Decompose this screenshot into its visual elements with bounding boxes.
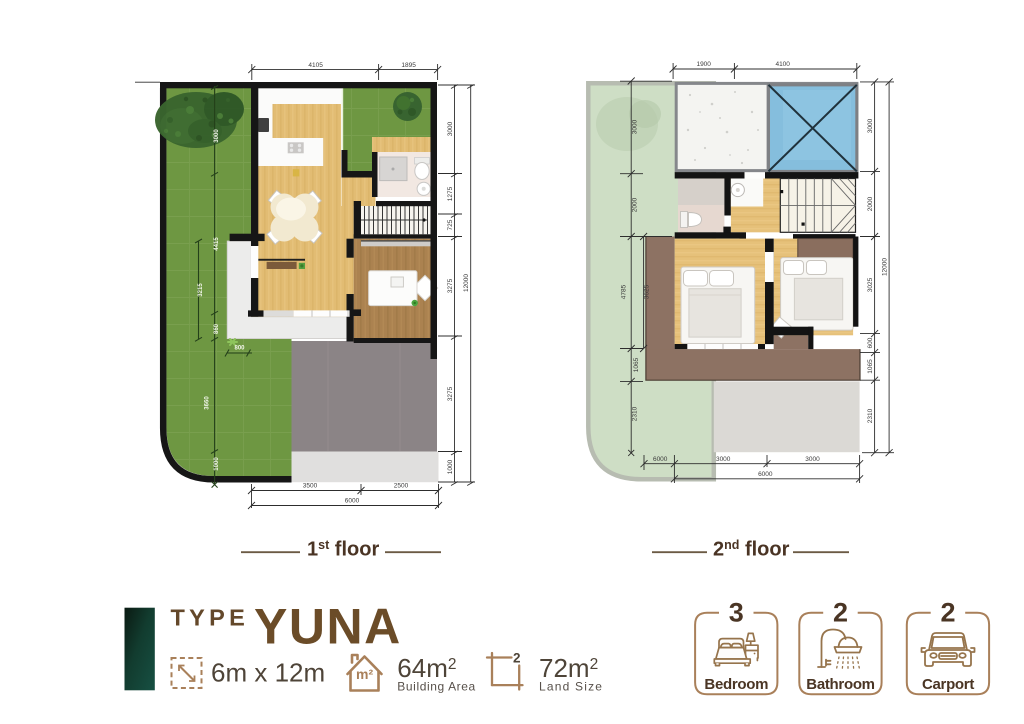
svg-text:600: 600 — [867, 337, 874, 348]
svg-text:2nd floor: 2nd floor — [713, 538, 790, 561]
svg-text:1900: 1900 — [696, 61, 711, 68]
svg-text:3000: 3000 — [867, 118, 874, 133]
svg-text:2: 2 — [513, 651, 521, 666]
svg-text:12000: 12000 — [882, 258, 889, 276]
svg-text:1065: 1065 — [867, 359, 874, 374]
svg-text:Land Size: Land Size — [539, 680, 603, 694]
svg-text:3000: 3000 — [632, 119, 639, 134]
svg-text:6000: 6000 — [345, 498, 360, 505]
svg-text:72m2: 72m2 — [539, 653, 598, 683]
svg-text:2500: 2500 — [394, 483, 409, 490]
svg-text:2000: 2000 — [632, 197, 639, 212]
svg-text:3000: 3000 — [716, 456, 731, 463]
svg-text:6000: 6000 — [758, 471, 773, 478]
svg-text:6000: 6000 — [653, 456, 668, 463]
svg-text:3500: 3500 — [303, 483, 318, 490]
svg-text:4100: 4100 — [775, 61, 790, 68]
svg-text:64m2: 64m2 — [397, 653, 456, 683]
svg-text:3000: 3000 — [805, 456, 820, 463]
svg-text:1065: 1065 — [633, 357, 640, 372]
svg-text:1275: 1275 — [447, 186, 454, 201]
svg-text:3275: 3275 — [447, 278, 454, 293]
svg-text:2310: 2310 — [867, 408, 874, 423]
svg-text:3625: 3625 — [644, 284, 651, 299]
svg-text:TYPE: TYPE — [171, 605, 250, 631]
svg-text:1895: 1895 — [401, 62, 416, 69]
svg-text:2000: 2000 — [867, 196, 874, 211]
svg-text:3: 3 — [729, 598, 744, 628]
svg-text:3000: 3000 — [447, 121, 454, 136]
svg-text:2: 2 — [833, 598, 848, 628]
svg-text:4785: 4785 — [621, 284, 628, 299]
svg-text:1st floor: 1st floor — [307, 538, 379, 561]
svg-text:1000: 1000 — [447, 459, 454, 474]
svg-text:4415: 4415 — [214, 237, 220, 251]
svg-text:860: 860 — [214, 323, 220, 334]
svg-text:Bathroom: Bathroom — [806, 676, 874, 693]
svg-text:1000: 1000 — [214, 457, 220, 471]
svg-text:3660: 3660 — [205, 396, 211, 410]
svg-text:YUNA: YUNA — [254, 599, 402, 655]
svg-text:Bedroom: Bedroom — [704, 676, 768, 693]
svg-text:4105: 4105 — [308, 62, 323, 69]
svg-text:m²: m² — [356, 666, 373, 682]
svg-text:6m x 12m: 6m x 12m — [211, 658, 325, 688]
svg-text:Carport: Carport — [922, 676, 974, 693]
svg-text:2: 2 — [940, 598, 955, 628]
svg-text:3000: 3000 — [214, 129, 220, 143]
svg-text:3025: 3025 — [867, 277, 874, 292]
svg-text:725: 725 — [447, 219, 454, 230]
svg-text:3275: 3275 — [447, 386, 454, 401]
svg-text:2310: 2310 — [632, 406, 639, 421]
svg-text:3215: 3215 — [198, 283, 204, 297]
svg-text:Building Area: Building Area — [397, 680, 476, 694]
svg-text:800: 800 — [234, 346, 245, 352]
svg-text:12000: 12000 — [463, 274, 470, 292]
